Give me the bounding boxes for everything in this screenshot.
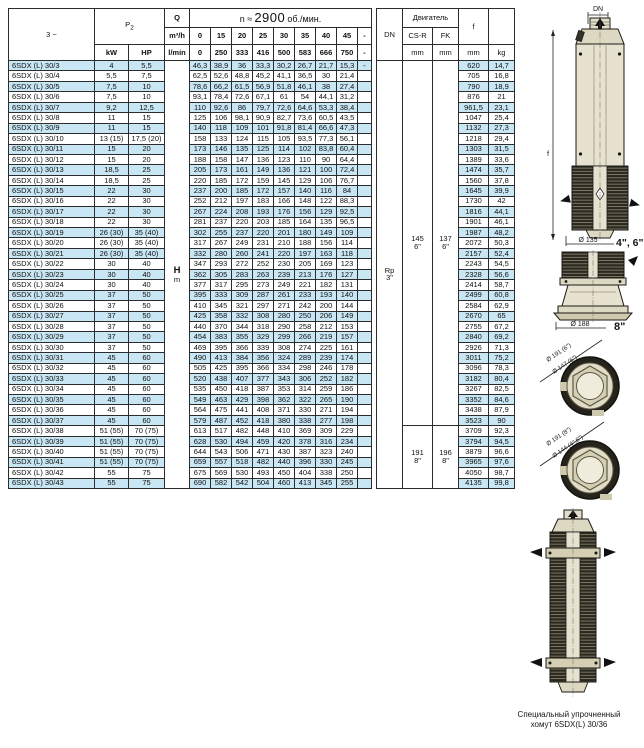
dash-cell: [358, 196, 372, 206]
dash-cell: [358, 186, 372, 196]
hp-cell: 30: [129, 196, 165, 206]
dash-cell: [358, 363, 372, 373]
head-value-cell: 564: [190, 405, 211, 415]
hp-cell: 60: [129, 415, 165, 425]
kg-cell: 92,3: [489, 426, 515, 436]
head-value-cell: 338: [295, 415, 316, 425]
head-value-cell: 535: [190, 384, 211, 394]
pump-row: 6SDX (L) 30/3545605494634293983623222651…: [9, 395, 372, 405]
dash-cell: [358, 228, 372, 238]
kw-cell: 45: [95, 415, 129, 425]
head-value-cell: 261: [274, 290, 295, 300]
head-value-cell: 41,1: [274, 71, 295, 81]
kg-cell: 16,8: [489, 71, 515, 81]
head-value-cell: 72,4: [337, 165, 358, 175]
head-value-cell: 98,1: [232, 113, 253, 123]
flow-m3h-45: 45: [337, 28, 358, 45]
kw-cell: 26 (30): [95, 238, 129, 248]
hp-cell: 40: [129, 269, 165, 279]
kw-cell: 18,5: [95, 175, 129, 185]
q-header: Q: [165, 9, 190, 28]
head-value-cell: 463: [211, 395, 232, 405]
f-cell: 3965: [459, 457, 489, 467]
head-value-cell: 72,6: [274, 102, 295, 112]
dash-cell: [358, 447, 372, 457]
dash-cell: [358, 478, 372, 488]
hp-cell: 60: [129, 384, 165, 394]
kg-cell: 37,8: [489, 175, 515, 185]
head-unit-cell: Hm: [165, 61, 190, 489]
kg-cell: 48,2: [489, 228, 515, 238]
head-value-cell: 418: [232, 384, 253, 394]
head-value-cell: 127: [337, 269, 358, 279]
head-value-cell: 420: [274, 436, 295, 446]
hp-cell: 60: [129, 395, 165, 405]
head-value-cell: 237: [211, 217, 232, 227]
head-value-cell: 249: [274, 280, 295, 290]
head-value-cell: 224: [211, 207, 232, 217]
head-value-cell: 395: [211, 342, 232, 352]
pump-size-label: 4", 6": [616, 237, 643, 248]
head-value-cell: 203: [253, 217, 274, 227]
head-value-cell: 267: [190, 207, 211, 217]
hp-cell: 60: [129, 353, 165, 363]
head-value-cell: 21,7: [316, 61, 337, 71]
f-cell: 2755: [459, 321, 489, 331]
pump-row: 6SDX (L) 30/2837504403703443182902582121…: [9, 321, 372, 331]
kg-cell: 44,1: [489, 207, 515, 217]
csr-lower-cell: 1918": [403, 426, 433, 489]
pump-row: 6SDX (L) 30/1522302372001851721571401168…: [9, 186, 372, 196]
kw-cell: 13 (15): [95, 134, 129, 144]
model-cell: 6SDX (L) 30/20: [9, 238, 95, 248]
head-value-cell: 344: [232, 321, 253, 331]
dash-cell: [358, 259, 372, 269]
head-value-cell: 149: [337, 311, 358, 321]
kg-header-spacer: [489, 9, 515, 45]
head-value-cell: 169: [316, 259, 337, 269]
head-value-cell: 429: [232, 395, 253, 405]
head-value-cell: 60,5: [316, 113, 337, 123]
hp-cell: 15: [129, 113, 165, 123]
head-value-cell: 210: [274, 238, 295, 248]
clamp-pointer-arrow: [628, 256, 638, 266]
dash-cell: [358, 175, 372, 185]
pump-row: 6SDX (L) 30/11152017314613512511410283,8…: [9, 144, 372, 154]
pump-row: 6SDX (L) 30/3851 (55)70 (75)613517482448…: [9, 426, 372, 436]
head-value-cell: 81,4: [295, 123, 316, 133]
kw-cell: 26 (30): [95, 228, 129, 238]
pump-row: 6SDX (L) 30/3645605644754414083713302711…: [9, 405, 372, 415]
flow-lmin-583: 583: [295, 45, 316, 61]
head-value-cell: 252: [253, 259, 274, 269]
dims-row: Rp3"1456"1376"62014,7: [377, 61, 515, 71]
head-value-cell: 469: [190, 342, 211, 352]
f-cell: 790: [459, 81, 489, 91]
model-cell: 6SDX (L) 30/21: [9, 248, 95, 258]
kw-cell: 55: [95, 478, 129, 488]
head-value-cell: 43,5: [337, 113, 358, 123]
right-table-body: Rp3"1456"1376"62014,770516,879018,987621…: [377, 61, 515, 489]
kw-header: kW: [95, 45, 129, 61]
head-value-cell: 220: [274, 248, 295, 258]
head-value-cell: 31,2: [337, 92, 358, 102]
head-value-cell: 157: [274, 186, 295, 196]
kw-cell: 30: [95, 259, 129, 269]
pump-row: 6SDX (L) 30/4051 (55)70 (75)644543506471…: [9, 447, 372, 457]
head-value-cell: 271: [274, 301, 295, 311]
head-value-cell: 125: [253, 144, 274, 154]
model-cell: 6SDX (L) 30/25: [9, 290, 95, 300]
main-table-body: 6SDX (L) 30/345,5Hm46,338,93633,330,226,…: [9, 61, 372, 489]
pump-row: 6SDX (L) 30/3145604904133843563242892391…: [9, 353, 372, 363]
head-value-cell: 129: [295, 175, 316, 185]
head-value-cell: 475: [211, 405, 232, 415]
pump-row: 6SDX (L) 30/3245605054253953663342982461…: [9, 363, 372, 373]
kg-cell: 90: [489, 415, 515, 425]
head-value-cell: 471: [253, 447, 274, 457]
head-value-cell: 15,3: [337, 61, 358, 71]
dash-cell: [358, 207, 372, 217]
head-value-cell: 188: [190, 154, 211, 164]
pump-row: 6SDX (L) 30/2430403773172952732492211821…: [9, 280, 372, 290]
head-value-cell: 387: [295, 447, 316, 457]
head-value-cell: 125: [190, 113, 211, 123]
head-value-cell: 110: [295, 154, 316, 164]
f-cell: 3709: [459, 426, 489, 436]
kg-cell: 80,4: [489, 374, 515, 384]
dash-cell: [358, 154, 372, 164]
head-value-cell: 272: [232, 259, 253, 269]
head-value-cell: 377: [190, 280, 211, 290]
kw-cell: 18,5: [95, 165, 129, 175]
model-cell: 6SDX (L) 30/38: [9, 426, 95, 436]
head-value-cell: 438: [211, 374, 232, 384]
pump-row: 6SDX (L) 30/57,51078,666,261,556,951,846…: [9, 81, 372, 91]
f-cell: 4135: [459, 478, 489, 488]
clamp-top-view-6in-drawing: Ø 191 (6") Ø 147 (6"): [538, 336, 638, 418]
head-value-cell: 38: [316, 81, 337, 91]
kw-cell: 37: [95, 332, 129, 342]
flow-lmin-416: 416: [253, 45, 274, 61]
head-value-cell: 255: [211, 228, 232, 238]
f-cell: 2584: [459, 301, 489, 311]
head-value-cell: 158: [190, 134, 211, 144]
dash-cell: [358, 374, 372, 384]
head-value-cell: 110: [190, 102, 211, 112]
head-value-cell: 266: [295, 332, 316, 342]
model-cell: 6SDX (L) 30/12: [9, 154, 95, 164]
head-value-cell: 200: [211, 186, 232, 196]
head-value-cell: 425: [190, 311, 211, 321]
head-value-cell: 219: [316, 332, 337, 342]
kg-cell: 78,3: [489, 363, 515, 373]
head-value-cell: 339: [253, 342, 274, 352]
head-value-cell: 334: [274, 363, 295, 373]
flow-lmin-250: 250: [211, 45, 232, 61]
kw-cell: 11: [95, 113, 129, 123]
head-value-cell: 115: [253, 134, 274, 144]
head-value-cell: 100: [316, 165, 337, 175]
head-value-cell: 518: [232, 457, 253, 467]
reinforced-clamp-pump-drawing: [514, 508, 632, 708]
head-value-cell: 260: [232, 248, 253, 258]
head-value-cell: 362: [274, 395, 295, 405]
head-value-cell: 182: [316, 280, 337, 290]
head-value-cell: 333: [211, 290, 232, 300]
kg-cell: 27,3: [489, 123, 515, 133]
head-value-cell: 30: [316, 71, 337, 81]
kg-cell: 52,4: [489, 248, 515, 258]
model-cell: 6SDX (L) 30/23: [9, 269, 95, 279]
pump-row: 6SDX (L) 30/3445605354504183873533142591…: [9, 384, 372, 394]
head-value-cell: 324: [274, 353, 295, 363]
phase-header: 3 ~: [9, 9, 95, 61]
head-value-cell: 369: [295, 426, 316, 436]
head-value-cell: 198: [337, 415, 358, 425]
pump-row: 6SDX (L) 30/2737504253583323082802502061…: [9, 311, 372, 321]
model-cell: 6SDX (L) 30/30: [9, 342, 95, 352]
pump-row: 6SDX (L) 30/1722302672242081931761561299…: [9, 207, 372, 217]
head-value-cell: 239: [274, 269, 295, 279]
head-value-cell: 193: [253, 207, 274, 217]
head-value-cell: 569: [211, 468, 232, 478]
head-value-cell: 287: [253, 290, 274, 300]
head-value-cell: 517: [211, 426, 232, 436]
head-value-cell: 182: [337, 374, 358, 384]
head-value-cell: 356: [253, 353, 274, 363]
f-cell: 3096: [459, 363, 489, 373]
pump-performance-table: 3 ~ P2 Q n ≈ 2900 об./мин. m³/h 0 15 20 …: [8, 8, 372, 489]
hp-cell: 35 (40): [129, 238, 165, 248]
head-value-cell: 220: [232, 217, 253, 227]
head-value-cell: 295: [232, 280, 253, 290]
pump-row: 6SDX (L) 30/1822302812372202031851641359…: [9, 217, 372, 227]
pump-row: 6SDX (L) 30/1318,52520517316114913612110…: [9, 165, 372, 175]
f-cell: 1303: [459, 144, 489, 154]
head-value-cell: 225: [316, 342, 337, 352]
kg-cell: 65: [489, 311, 515, 321]
kg-header: kg: [489, 45, 515, 61]
model-cell: 6SDX (L) 30/17: [9, 207, 95, 217]
dash-cell: [358, 134, 372, 144]
head-value-cell: 338: [316, 468, 337, 478]
pump-row: 6SDX (L) 30/2937504543833553292992662191…: [9, 332, 372, 342]
head-value-cell: 314: [295, 384, 316, 394]
head-value-cell: 579: [190, 415, 211, 425]
head-value-cell: 454: [190, 332, 211, 342]
hp-cell: 40: [129, 259, 165, 269]
head-value-cell: 135: [232, 144, 253, 154]
head-value-cell: 418: [253, 415, 274, 425]
head-value-cell: 250: [295, 311, 316, 321]
model-cell: 6SDX (L) 30/41: [9, 457, 95, 467]
head-value-cell: 283: [232, 269, 253, 279]
head-value-cell: 102: [295, 144, 316, 154]
flow-m3h-30: 30: [274, 28, 295, 45]
head-value-cell: 200: [316, 301, 337, 311]
hp-cell: 25: [129, 165, 165, 175]
clamp-pointer-arrow: [530, 658, 542, 667]
f-cell: 705: [459, 71, 489, 81]
head-value-cell: 121: [295, 165, 316, 175]
head-value-cell: 220: [190, 175, 211, 185]
hp-cell: 75: [129, 478, 165, 488]
head-value-cell: 613: [190, 426, 211, 436]
head-value-cell: 66,2: [211, 81, 232, 91]
head-value-cell: 413: [211, 353, 232, 363]
head-value-cell: 410: [274, 426, 295, 436]
f-cell: 2840: [459, 332, 489, 342]
head-value-cell: 330: [316, 457, 337, 467]
head-value-cell: 140: [190, 123, 211, 133]
hp-cell: 12,5: [129, 102, 165, 112]
head-value-cell: 298: [295, 363, 316, 373]
hp-cell: 30: [129, 217, 165, 227]
hp-cell: 60: [129, 405, 165, 415]
f-cell: 2328: [459, 269, 489, 279]
model-cell: 6SDX (L) 30/6: [9, 92, 95, 102]
head-value-cell: 309: [316, 426, 337, 436]
head-value-cell: 290: [274, 321, 295, 331]
head-value-cell: 293: [211, 259, 232, 269]
f-cell: 1389: [459, 154, 489, 164]
head-value-cell: 38,9: [211, 61, 232, 71]
head-value-cell: 46,1: [295, 81, 316, 91]
dash-cell: [358, 395, 372, 405]
kg-cell: 21: [489, 92, 515, 102]
dash-cell: [358, 468, 372, 478]
pump-row: 6SDX (L) 30/67,51093,178,472,667,1615444…: [9, 92, 372, 102]
kw-cell: 45: [95, 395, 129, 405]
head-value-cell: 398: [253, 395, 274, 405]
f-cell: 1047: [459, 113, 489, 123]
head-value-cell: 166: [274, 196, 295, 206]
dash-cell: [358, 426, 372, 436]
model-cell: 6SDX (L) 30/28: [9, 321, 95, 331]
flow-lmin-dash: -: [358, 45, 372, 61]
head-value-cell: 46,3: [190, 61, 211, 71]
pump-row: 6SDX (L) 30/3745605794874524183803382771…: [9, 415, 372, 425]
adapter-diameter-label: Ø 188: [570, 321, 589, 328]
head-value-cell: 92,6: [211, 102, 232, 112]
kg-cell: 46,1: [489, 217, 515, 227]
head-value-cell: 33,3: [253, 61, 274, 71]
hp-cell: 70 (75): [129, 457, 165, 467]
model-cell: 6SDX (L) 30/22: [9, 259, 95, 269]
head-value-cell: 234: [337, 436, 358, 446]
head-value-cell: 370: [211, 321, 232, 331]
head-value-cell: 173: [211, 165, 232, 175]
hp-cell: 15: [129, 123, 165, 133]
head-value-cell: 56,1: [337, 134, 358, 144]
head-value-cell: 140: [337, 290, 358, 300]
model-cell: 6SDX (L) 30/3: [9, 61, 95, 71]
head-value-cell: 259: [316, 384, 337, 394]
head-value-cell: 38,4: [337, 102, 358, 112]
f-dim-label: f: [547, 149, 550, 158]
head-value-cell: 109: [232, 123, 253, 133]
kg-cell: 96,6: [489, 447, 515, 457]
model-cell: 6SDX (L) 30/33: [9, 374, 95, 384]
head-value-cell: 73,6: [295, 113, 316, 123]
hp-cell: 50: [129, 342, 165, 352]
head-value-cell: 281: [190, 217, 211, 227]
head-value-cell: 252: [316, 374, 337, 384]
kw-cell: 51 (55): [95, 436, 129, 446]
clamp-pointer-arrow: [629, 199, 641, 209]
head-value-cell: 64,4: [337, 154, 358, 164]
hp-header: HP: [129, 45, 165, 61]
head-value-cell: 345: [211, 301, 232, 311]
head-value-cell: 249: [232, 238, 253, 248]
fk-upper-cell: 1376": [433, 61, 459, 426]
head-value-cell: 452: [232, 415, 253, 425]
pump-row: 6SDX (L) 30/4255756755695304934504043382…: [9, 468, 372, 478]
dash-cell: [358, 144, 372, 154]
pump-row: 6SDX (L) 30/2026 (30)35 (40)317267249231…: [9, 238, 372, 248]
head-value-cell: 242: [295, 301, 316, 311]
hp-cell: 7,5: [129, 71, 165, 81]
model-cell: 6SDX (L) 30/19: [9, 228, 95, 238]
dash-cell: [358, 321, 372, 331]
head-value-cell: 123: [274, 154, 295, 164]
head-value-cell: 78,6: [190, 81, 211, 91]
dash-cell: [358, 102, 372, 112]
head-value-cell: 185: [232, 186, 253, 196]
pump-row: 6SDX (L) 30/9111514011810910191,881,466,…: [9, 123, 372, 133]
kg-cell: 75,2: [489, 353, 515, 363]
hp-cell: 60: [129, 374, 165, 384]
hp-cell: 5,5: [129, 61, 165, 71]
model-cell: 6SDX (L) 30/37: [9, 415, 95, 425]
head-value-cell: 329: [253, 332, 274, 342]
head-value-cell: 273: [253, 280, 274, 290]
head-value-cell: 230: [274, 259, 295, 269]
head-value-cell: 36: [232, 61, 253, 71]
head-value-cell: 250: [337, 468, 358, 478]
head-value-cell: 347: [190, 259, 211, 269]
head-value-cell: 582: [211, 478, 232, 488]
f-cell: 1132: [459, 123, 489, 133]
f-cell: 3794: [459, 436, 489, 446]
fk-lower-cell: 1968": [433, 426, 459, 489]
model-cell: 6SDX (L) 30/36: [9, 405, 95, 415]
head-value-cell: 136: [274, 165, 295, 175]
head-value-cell: 305: [211, 269, 232, 279]
head-value-cell: 317: [211, 280, 232, 290]
head-value-cell: 277: [316, 415, 337, 425]
head-value-cell: 318: [253, 321, 274, 331]
model-cell: 6SDX (L) 30/34: [9, 384, 95, 394]
head-value-cell: 30,2: [274, 61, 295, 71]
f-cell: 3352: [459, 395, 489, 405]
hp-cell: 20: [129, 154, 165, 164]
pump-row: 6SDX (L) 30/4151 (55)70 (75)659557518482…: [9, 457, 372, 467]
dash-cell: [358, 405, 372, 415]
kw-cell: 7,5: [95, 81, 129, 91]
head-value-cell: 90: [316, 154, 337, 164]
flow-lmin-500: 500: [274, 45, 295, 61]
head-value-cell: 147: [232, 154, 253, 164]
head-value-cell: 309: [232, 290, 253, 300]
hp-cell: 50: [129, 301, 165, 311]
flow-m3h-0: 0: [190, 28, 211, 45]
kw-cell: 22: [95, 186, 129, 196]
head-value-cell: 494: [232, 436, 253, 446]
kw-cell: 37: [95, 321, 129, 331]
hp-cell: 30: [129, 207, 165, 217]
